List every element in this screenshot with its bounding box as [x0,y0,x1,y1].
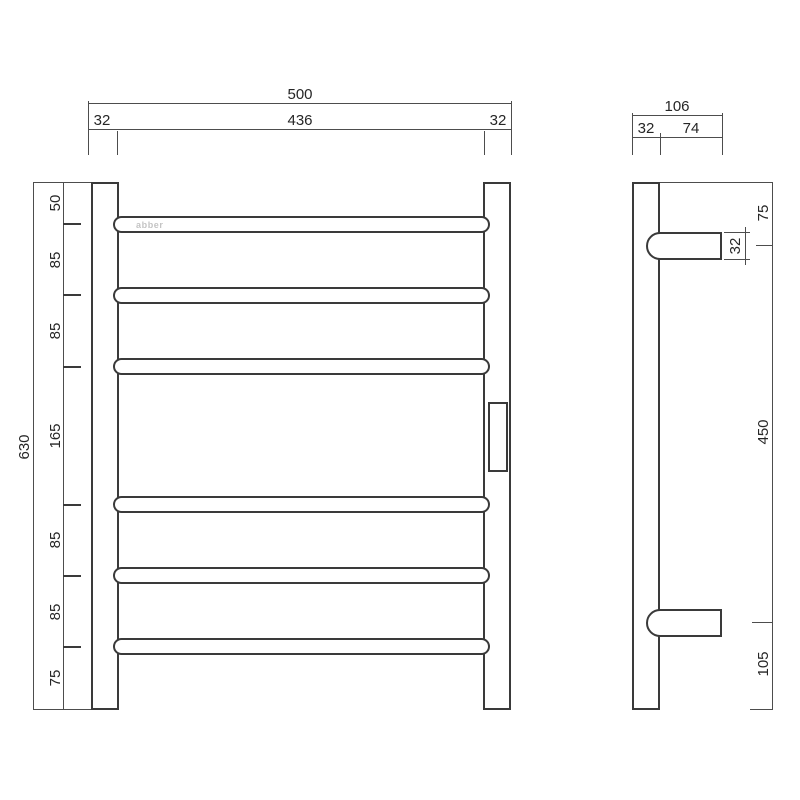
dim-label-bracket-spacing: 450 [757,412,771,452]
ext-tick [63,646,81,648]
ext-tick [756,245,772,246]
dim-label-seg-85d: 85 [49,594,63,630]
towel-bar-1 [113,216,490,233]
dim-line-32 [745,227,746,265]
ext-line [33,709,91,710]
ext-line [484,131,485,155]
ext-line [511,101,512,155]
dim-label-overall-depth: 106 [655,100,699,114]
control-box [488,402,508,472]
dim-label-bracket-reach: 74 [679,122,703,136]
dim-line-32-436-32 [88,129,512,130]
dim-label-top-to-bracket: 75 [757,193,771,233]
ext-line [660,182,772,183]
towel-bar-6 [113,638,490,655]
ext-tick [750,709,772,710]
ext-line [33,182,91,183]
dim-label-right-offset: 32 [486,114,510,128]
dim-label-seg-85b: 85 [49,313,63,349]
ext-line [722,113,723,155]
technical-drawing-canvas: abber 500 32 436 32 630 50 85 85 165 85 … [0,0,800,800]
dim-line-500 [88,103,512,104]
dim-label-bracket-to-bottom: 105 [757,644,771,684]
dim-label-seg-75: 75 [49,660,63,696]
towel-bar-2 [113,287,490,304]
dim-label-seg-85c: 85 [49,522,63,558]
dim-label-seg-165: 165 [49,418,63,454]
towel-bar-4 [113,496,490,513]
dim-label-overall-width: 500 [278,88,322,102]
front-left-rail [91,182,119,710]
towel-bar-3 [113,358,490,375]
dim-label-post-depth: 32 [634,122,658,136]
towel-bar-5 [113,567,490,584]
dim-label-overall-height: 630 [18,427,32,467]
dim-line-32-74 [632,137,722,138]
ext-line [632,113,633,155]
ext-line [88,101,89,155]
ext-line [724,232,750,233]
dim-line-630 [33,182,34,710]
dim-label-seg-50: 50 [49,185,63,221]
dim-label-bracket-thickness: 32 [729,234,743,258]
ext-tick [63,223,81,225]
brand-logo: abber [136,221,164,230]
ext-line [724,259,750,260]
ext-tick [63,575,81,577]
dim-line-106 [632,115,722,116]
ext-tick [752,622,772,623]
dim-label-seg-85a: 85 [49,242,63,278]
dim-label-left-offset: 32 [90,114,114,128]
ext-tick [63,504,81,506]
ext-line [117,131,118,155]
ext-line [660,133,661,155]
dim-label-bar-width: 436 [278,114,322,128]
ext-tick [63,294,81,296]
ext-tick [63,366,81,368]
dim-line-side-height [772,182,773,710]
lower-wall-bracket [646,609,722,637]
upper-wall-bracket [646,232,722,260]
